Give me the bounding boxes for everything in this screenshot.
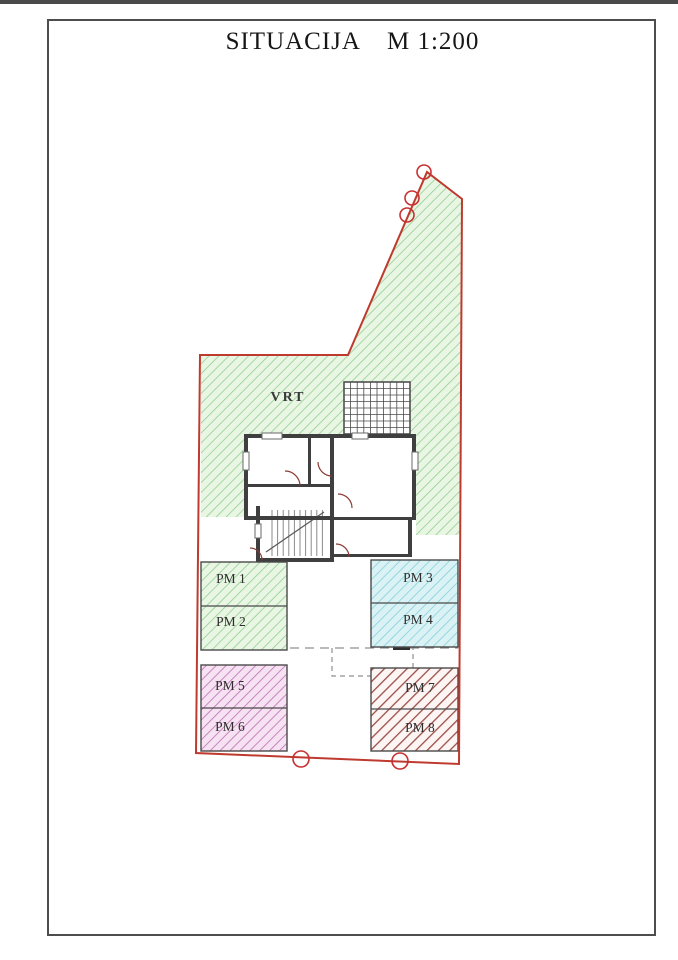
parking-spot-pm5-pm6: PM 5 PM 6 <box>201 665 287 751</box>
pm5-label: PM 5 <box>215 678 245 693</box>
pm7-label: PM 7 <box>405 680 435 695</box>
pm3-label: PM 3 <box>403 570 433 585</box>
pm2-label: PM 2 <box>216 614 246 629</box>
parking-spot-pm1-pm2: PM 1 PM 2 <box>201 562 287 650</box>
parking-spot-pm7-pm8: PM 7 PM 8 <box>371 668 458 751</box>
building-floor-plan <box>243 433 418 562</box>
site-plan-drawing: PM 1 PM 2 PM 3 PM 4 PM 5 PM 6 PM 7 PM 8 … <box>0 0 678 960</box>
pergola-grid <box>344 382 410 434</box>
pm6-label: PM 6 <box>215 719 245 734</box>
pm8-label: PM 8 <box>405 720 435 735</box>
pm4-label: PM 4 <box>403 612 433 627</box>
garden-label: VRT <box>270 390 305 405</box>
survey-marker-icon <box>293 751 309 767</box>
parking-spot-pm3-pm4: PM 3 PM 4 <box>371 560 458 647</box>
pm1-label: PM 1 <box>216 571 246 586</box>
